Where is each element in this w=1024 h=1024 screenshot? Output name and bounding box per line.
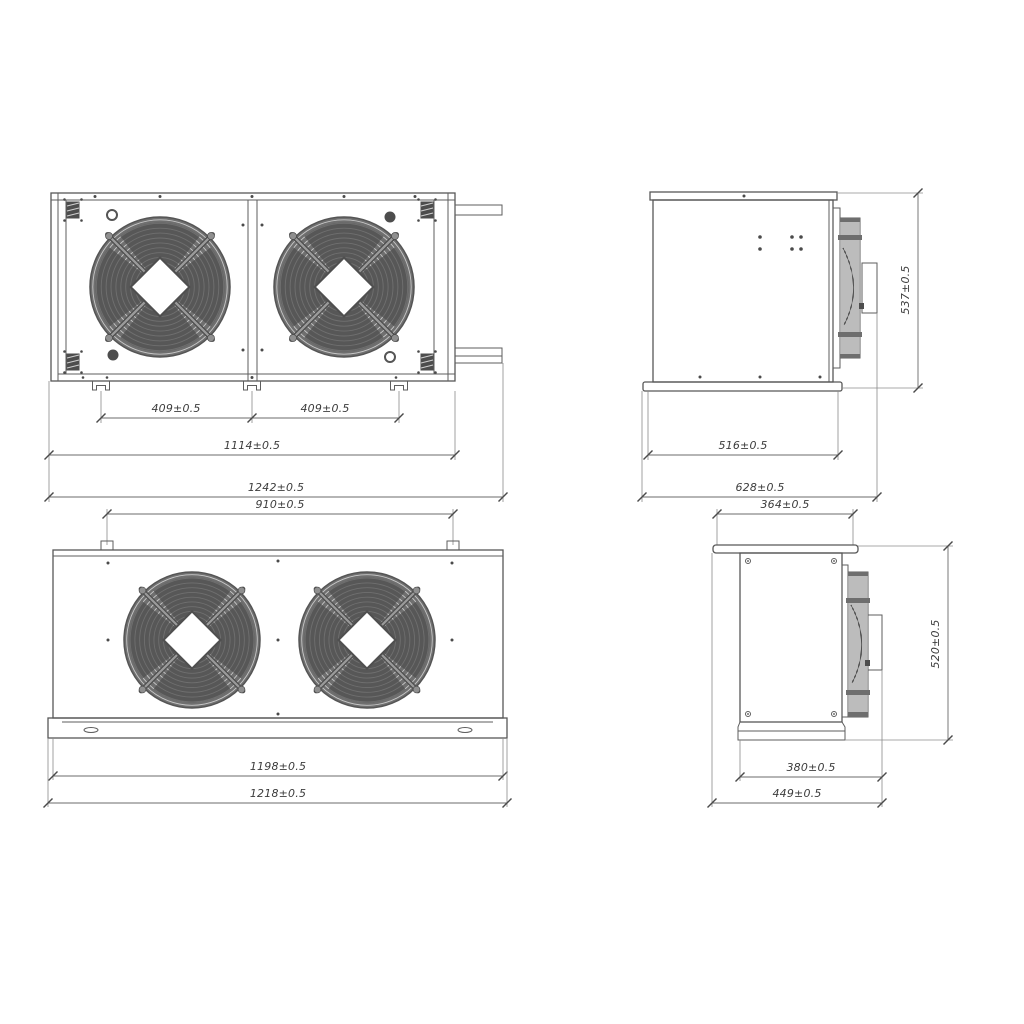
dim-label-overall-length: 1218±0.5 bbox=[250, 787, 306, 800]
front-fan-right bbox=[274, 217, 414, 357]
flange-slot-left bbox=[84, 728, 98, 733]
panel-dots bbox=[699, 195, 822, 379]
dim-front-fan-pitch: 409±0.5 409±0.5 bbox=[97, 391, 404, 423]
dim-label-side-overall-depth: 628±0.5 bbox=[735, 481, 784, 494]
dim-label-side-body-depth: 516±0.5 bbox=[718, 439, 767, 452]
valve-knob bbox=[865, 660, 870, 666]
technical-drawing: 409±0.5 409±0.5 1114±0.5 1242±0.5 bbox=[0, 0, 1024, 1024]
dim-label-overall-width: 1242±0.5 bbox=[248, 481, 304, 494]
screw-hole-ring bbox=[107, 210, 117, 220]
pipe-stub-bottom bbox=[455, 348, 502, 356]
base-foot bbox=[738, 722, 845, 740]
top-casing bbox=[53, 550, 503, 718]
dim-side-body-depth: 516±0.5 bbox=[644, 391, 843, 460]
top-fan-right bbox=[299, 572, 435, 708]
front-view: 409±0.5 409±0.5 1114±0.5 1242±0.5 bbox=[45, 193, 508, 502]
screw-hole-filled bbox=[108, 350, 119, 361]
dim-top-body-length: 1198±0.5 bbox=[49, 738, 508, 781]
coil-header-bracket bbox=[862, 263, 877, 313]
valve-knob bbox=[859, 303, 864, 309]
front-fan-left bbox=[90, 217, 230, 357]
side-view-upper: 537±0.5 516±0.5 628±0.5 bbox=[638, 189, 924, 503]
drawing-page: 409±0.5 409±0.5 1114±0.5 1242±0.5 bbox=[0, 0, 1024, 1024]
top-view: 910±0.5 1198±0.5 bbox=[44, 498, 512, 808]
dim-top-mounting-pitch: 910±0.5 bbox=[103, 498, 458, 545]
dim-label-fan-pitch-right: 409±0.5 bbox=[300, 402, 349, 415]
dim-label-mounting-pitch: 910±0.5 bbox=[255, 498, 304, 511]
pipe-stub-bottom-2 bbox=[455, 356, 502, 363]
dim-label-lower-height: 520±0.5 bbox=[929, 619, 942, 668]
top-fan-left bbox=[124, 572, 260, 708]
dim-label-side-height: 537±0.5 bbox=[899, 265, 912, 314]
coil-fin-pack bbox=[833, 208, 862, 368]
dim-label-body-length: 1198±0.5 bbox=[250, 760, 306, 773]
dim-side-overall-depth: 628±0.5 bbox=[638, 313, 882, 502]
corner-screws bbox=[746, 559, 837, 717]
side-casing bbox=[653, 200, 833, 382]
screw-hole-ring bbox=[385, 352, 395, 362]
dim-lower-top-plate-width: 364±0.5 bbox=[713, 498, 858, 545]
lower-casing bbox=[740, 553, 842, 722]
base-plate bbox=[643, 382, 842, 391]
side-view-lower: 364±0.5 bbox=[708, 498, 954, 808]
flange-slot-right bbox=[458, 728, 472, 733]
coil-header-bracket bbox=[868, 615, 882, 670]
dim-label-mounting-width: 1114±0.5 bbox=[224, 439, 280, 452]
dim-label-lower-overall-depth: 449±0.5 bbox=[772, 787, 821, 800]
dim-label-lower-body-depth: 380±0.5 bbox=[786, 761, 835, 774]
dim-label-top-plate-width: 364±0.5 bbox=[760, 498, 809, 511]
front-flange bbox=[48, 718, 507, 738]
coil-fin-pack bbox=[842, 565, 870, 717]
dim-label-fan-pitch-left: 409±0.5 bbox=[151, 402, 200, 415]
top-plate bbox=[713, 545, 858, 553]
pipe-stub-top bbox=[455, 205, 502, 215]
dim-front-overall-width: 1242±0.5 bbox=[45, 363, 508, 502]
screw-hole-filled bbox=[385, 212, 396, 223]
